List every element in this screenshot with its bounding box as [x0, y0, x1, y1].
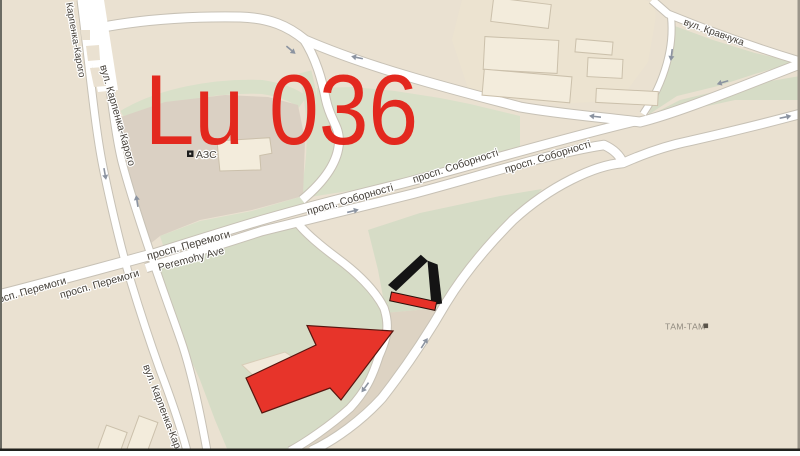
svg-text:ТАМ-ТАМ: ТАМ-ТАМ	[665, 322, 705, 332]
svg-text:Lu 036: Lu 036	[145, 55, 419, 166]
